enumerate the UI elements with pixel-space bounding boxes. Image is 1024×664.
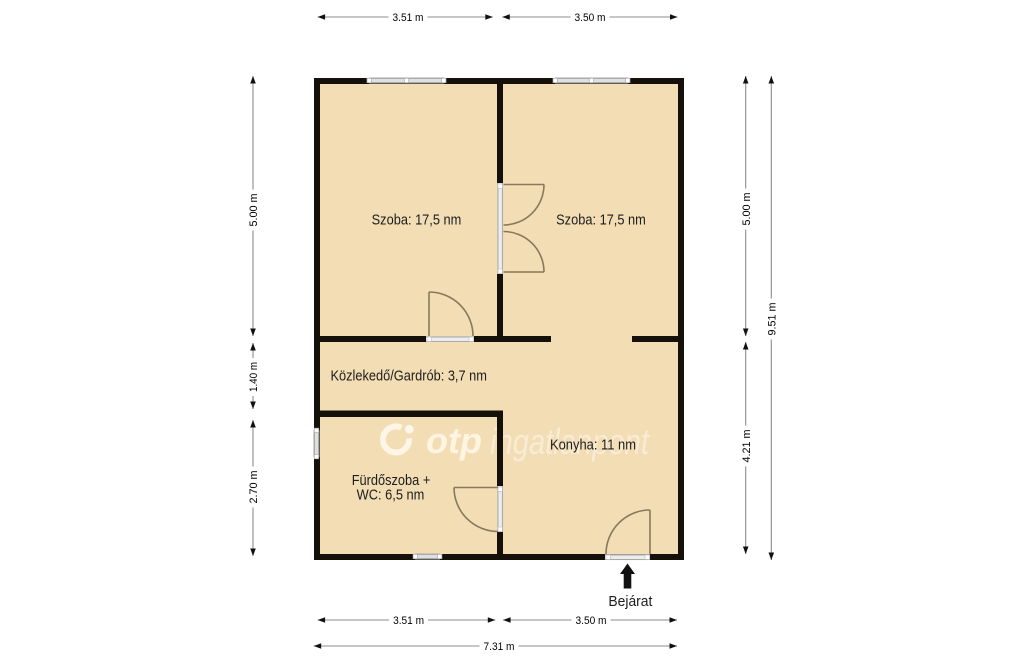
- svg-text:7.31 m: 7.31 m: [484, 641, 515, 653]
- svg-text:3.51 m: 3.51 m: [393, 615, 424, 627]
- svg-text:5.00 m: 5.00 m: [248, 194, 260, 227]
- svg-text:5.00 m: 5.00 m: [741, 193, 753, 226]
- svg-text:Konyha: 11 nm: Konyha: 11 nm: [550, 437, 636, 454]
- svg-text:Közlekedő/Gardrób: 3,7 nm: Közlekedő/Gardrób: 3,7 nm: [330, 367, 487, 384]
- svg-text:otp: otp: [426, 420, 482, 461]
- svg-text:3.50 m: 3.50 m: [576, 615, 607, 627]
- svg-text:9.51 m: 9.51 m: [766, 303, 778, 336]
- svg-text:1.40 m: 1.40 m: [248, 362, 260, 392]
- svg-text:3.51 m: 3.51 m: [393, 12, 424, 24]
- svg-text:4.21 m: 4.21 m: [741, 430, 753, 463]
- svg-text:2.70 m: 2.70 m: [248, 471, 260, 504]
- svg-text:WC: 6,5 nm: WC: 6,5 nm: [357, 487, 425, 504]
- svg-text:Szoba: 17,5 nm: Szoba: 17,5 nm: [372, 212, 462, 229]
- svg-text:3.50 m: 3.50 m: [575, 12, 606, 24]
- svg-text:Bejárat: Bejárat: [608, 593, 653, 610]
- svg-text:Szoba: 17,5 nm: Szoba: 17,5 nm: [556, 212, 646, 229]
